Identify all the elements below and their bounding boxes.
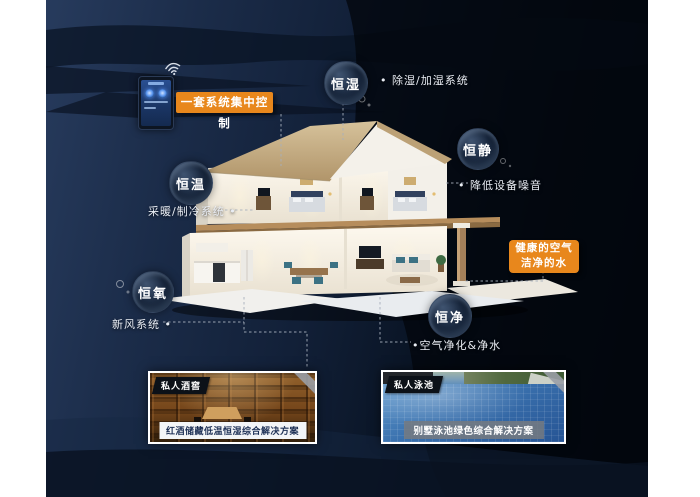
note-humidity: • 除湿/加湿系统 (380, 72, 469, 88)
card-pool-caption: 别墅泳池绿色综合解决方案 (403, 421, 543, 439)
bubble-temperature: 恒温 (169, 161, 213, 205)
wine-table (202, 407, 242, 419)
card-wine-caption: 红酒储藏低温恒湿综合解决方案 (159, 422, 306, 439)
dial-icon (145, 89, 154, 98)
note-quiet: • 降低设备噪音 (458, 177, 542, 193)
highlight-line2: 洁净的水 (509, 256, 579, 271)
bubble-clean: 恒净 (428, 294, 472, 338)
infographic-frame: 一套系统集中控制 健康的空气 洁净的水 恒湿 恒静 恒温 恒氧 恒净 • 除湿/… (0, 0, 700, 497)
highlight-box: 健康的空气 洁净的水 (509, 240, 579, 273)
smartphone-mockup (138, 76, 174, 130)
highlight-line1: 健康的空气 (509, 241, 579, 256)
bubble-quiet: 恒静 (457, 128, 499, 170)
card-wine-badge: 私人酒窖 (152, 377, 210, 394)
phone-label-bar (144, 101, 168, 103)
corner-ribbon (290, 373, 315, 397)
card-pool: 私人泳池 别墅泳池绿色综合解决方案 (381, 370, 566, 444)
phone-screen (141, 80, 171, 126)
bubble-oxygen: 恒氧 (132, 271, 174, 313)
dial-icon (158, 89, 167, 98)
phone-header-bar (148, 82, 164, 85)
bubble-quiet-label: 恒静 (463, 140, 493, 159)
pool-photo: 私人泳池 别墅泳池绿色综合解决方案 (383, 372, 564, 442)
phone-label-bar (144, 107, 156, 109)
note-oxygen: 新风系统 • (112, 316, 172, 332)
note-clean: •空气净化&净水 (412, 337, 501, 353)
card-wine: 私人酒窖 红酒储藏低温恒湿综合解决方案 (148, 371, 317, 444)
bubble-clean-label: 恒净 (435, 307, 465, 326)
bubble-temperature-label: 恒温 (176, 174, 206, 193)
bubble-oxygen-label: 恒氧 (138, 283, 168, 302)
wine-photo: 私人酒窖 红酒储藏低温恒湿综合解决方案 (150, 373, 315, 442)
bubble-humidity: 恒湿 (324, 61, 368, 105)
card-pool-badge: 私人泳池 (385, 376, 443, 393)
bubble-humidity-label: 恒湿 (331, 74, 361, 93)
note-temperature: 采暖/制冷系统 • (148, 203, 237, 219)
control-label: 一套系统集中控制 (176, 92, 273, 113)
